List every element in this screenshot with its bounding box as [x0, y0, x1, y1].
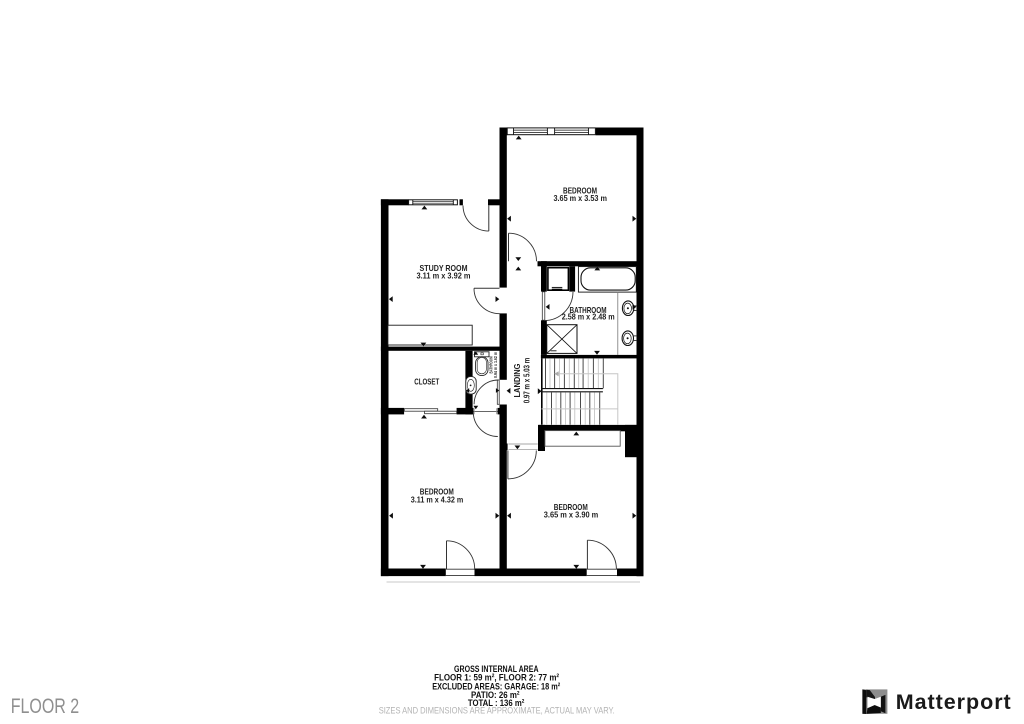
svg-text:0.94 m x 1.62 m: 0.94 m x 1.62 m	[493, 352, 498, 378]
svg-text:FLOOR 2: FLOOR 2	[11, 694, 80, 718]
svg-text:LANDING: LANDING	[512, 363, 522, 397]
svg-text:SIZES AND DIMENSIONS ARE APPRO: SIZES AND DIMENSIONS ARE APPROXIMATE, AC…	[379, 706, 615, 716]
svg-text:3.65 m x 3.53 m: 3.65 m x 3.53 m	[553, 194, 607, 203]
svg-text:2.58 m x 2.48 m: 2.58 m x 2.48 m	[562, 313, 615, 322]
svg-text:Matterport: Matterport	[896, 690, 1011, 714]
svg-text:CLOSET: CLOSET	[414, 377, 440, 387]
svg-text:3.11 m x 3.92 m: 3.11 m x 3.92 m	[417, 272, 471, 281]
svg-text:3.11 m x 4.32 m: 3.11 m x 4.32 m	[411, 495, 464, 504]
svg-text:3.65 m x 3.90 m: 3.65 m x 3.90 m	[544, 511, 599, 520]
svg-text:0.97 m x 5.03 m: 0.97 m x 5.03 m	[523, 358, 532, 404]
